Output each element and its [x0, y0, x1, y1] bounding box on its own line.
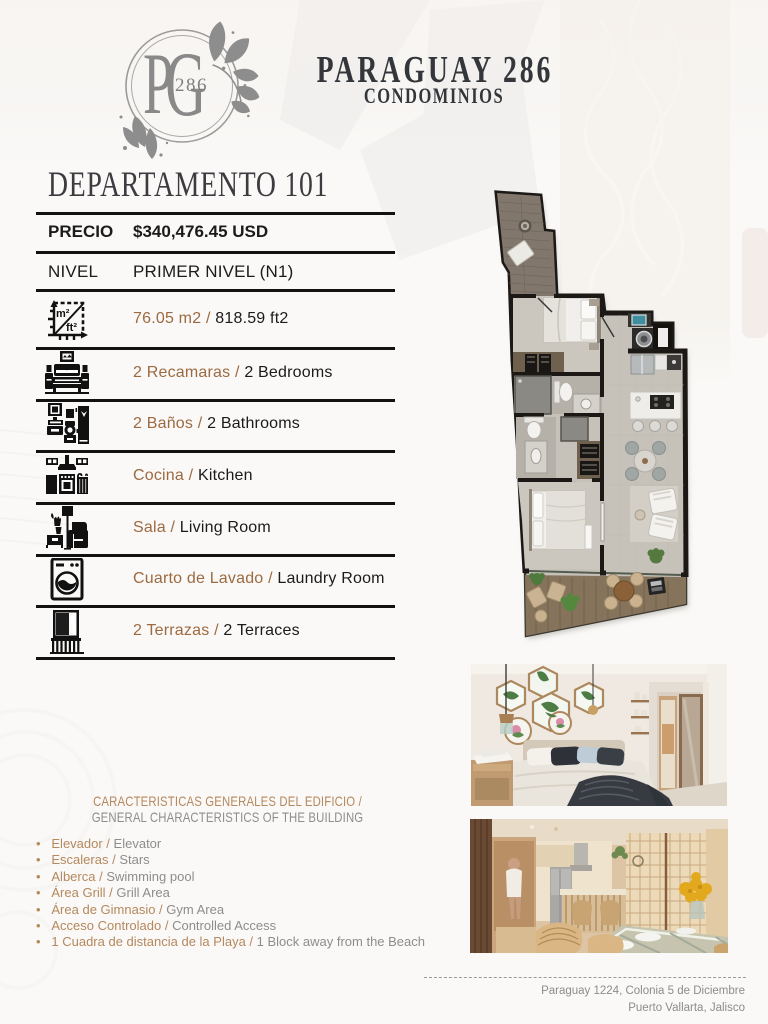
svg-text:m²: m²	[56, 308, 70, 320]
svg-text:286: 286	[175, 75, 208, 96]
svg-text:ft²: ft²	[66, 322, 77, 334]
